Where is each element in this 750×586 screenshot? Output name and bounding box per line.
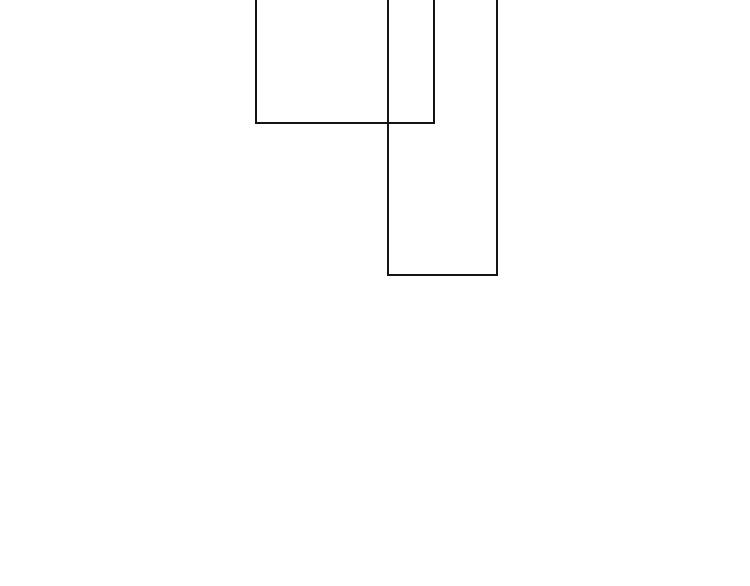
overlapping-rectangle-right bbox=[387, 0, 498, 276]
canvas bbox=[0, 0, 750, 586]
